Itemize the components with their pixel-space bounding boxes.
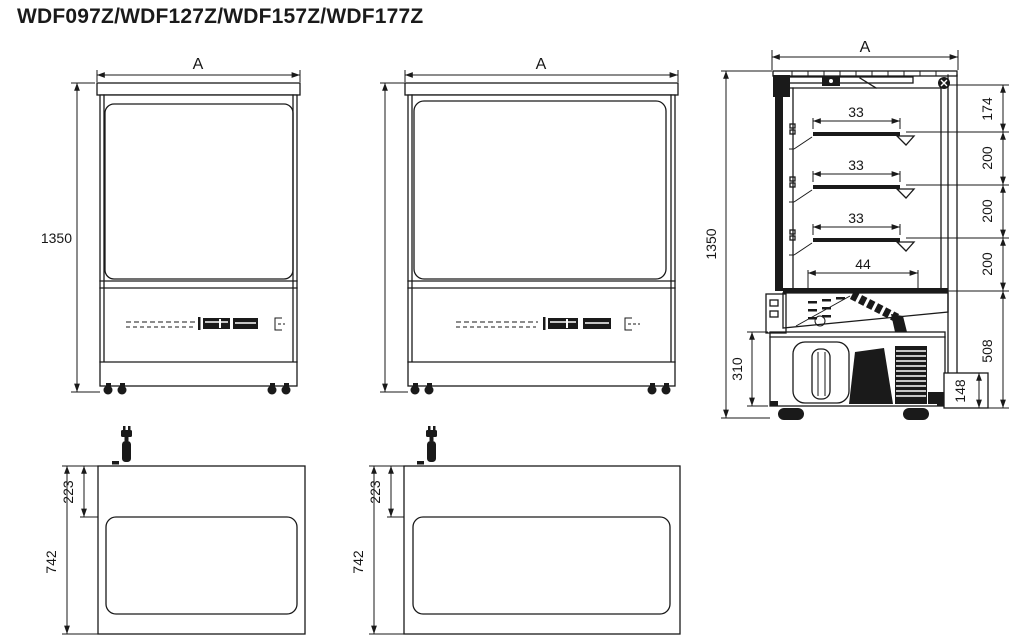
shelf-tag xyxy=(897,242,914,251)
dim-width-A: A xyxy=(536,56,547,73)
shelf xyxy=(813,185,900,189)
dim-depth: 742 xyxy=(350,550,366,574)
deck: 44 xyxy=(783,256,948,293)
cabinet-body xyxy=(408,95,675,386)
top-canopy xyxy=(97,83,300,95)
cabinet-outline xyxy=(97,83,300,386)
strip-divider xyxy=(198,317,201,330)
dim-bay-height: 310 xyxy=(729,357,745,381)
dim-front-offset: 223 xyxy=(60,480,76,504)
machine-compartment xyxy=(770,332,945,420)
evaporator-bay xyxy=(766,293,948,333)
front-glass-top xyxy=(773,75,790,97)
drain-hose-icon xyxy=(852,295,897,318)
dim-shelf-depth: 33 xyxy=(848,104,864,120)
front-view-wide: A xyxy=(380,56,678,395)
compressor-icon xyxy=(793,342,849,403)
rear-plinth: 148 xyxy=(944,373,988,408)
wheel-icon xyxy=(778,408,804,420)
caster-wheel-icon xyxy=(648,386,657,395)
top-canopy xyxy=(405,83,678,95)
shelf xyxy=(813,132,900,136)
dim-deck-depth: 44 xyxy=(855,256,871,272)
display-block-icon xyxy=(203,318,230,329)
strip-divider xyxy=(543,317,546,330)
compressor-bay-dimension: 310 xyxy=(729,332,768,406)
dim-shelf-depth: 33 xyxy=(848,157,864,173)
dim-overall-height: 1350 xyxy=(703,228,719,259)
fan-shroud-icon xyxy=(849,348,893,404)
cabinet-body xyxy=(100,95,297,386)
caster-wheel-icon xyxy=(662,386,671,395)
cabinet-section xyxy=(773,75,957,373)
dim-depth: 742 xyxy=(43,550,59,574)
dim-shelf-gap: 200 xyxy=(979,199,995,223)
shelf-3: 33 xyxy=(789,210,914,255)
shelf-tag xyxy=(897,136,914,145)
wheel-icon xyxy=(903,408,929,420)
drawing-sheet: WDF097Z/WDF127Z/WDF157Z/WDF177Z A 1350 xyxy=(0,0,1024,641)
dim-shelf-gap: 200 xyxy=(979,252,995,276)
caster-wheel-icon xyxy=(282,386,291,395)
dim-shelf-depth: 33 xyxy=(848,210,864,226)
front-view-narrow: A 1350 xyxy=(41,56,300,395)
dim-width-A: A xyxy=(193,56,204,73)
top-lid xyxy=(773,71,957,89)
height-dimension: 1350 xyxy=(41,83,100,392)
dim-shelf-gap: 200 xyxy=(979,146,995,170)
shelf xyxy=(813,238,900,242)
shelf-2: 33 xyxy=(789,157,914,202)
side-section-view: A 1350 xyxy=(703,39,1009,420)
dim-front-offset: 223 xyxy=(367,480,383,504)
caster-wheel-icon xyxy=(104,386,113,395)
cabinet-plan xyxy=(404,466,680,634)
power-cord-icon xyxy=(417,426,437,465)
width-dimension: A xyxy=(97,56,300,82)
width-dimension: A xyxy=(405,56,678,82)
dim-plinth-height: 148 xyxy=(952,379,968,403)
dim-width-A: A xyxy=(860,39,871,56)
display-block-icon xyxy=(548,318,578,329)
height-dimension-unlabeled xyxy=(380,83,408,392)
caster-wheel-icon xyxy=(425,386,434,395)
lid-frame xyxy=(783,77,913,83)
caster-wheel-icon xyxy=(118,386,127,395)
dim-overall-height: 1350 xyxy=(41,230,72,246)
caster-wheel-icon xyxy=(268,386,277,395)
front-glass xyxy=(775,95,783,291)
cabinet-plan xyxy=(98,466,305,634)
width-dimension: A xyxy=(772,39,958,70)
dim-base-height: 508 xyxy=(979,339,995,363)
deck-plate xyxy=(783,288,948,293)
top-view-narrow: 742 223 xyxy=(43,426,305,634)
dim-top-gap: 174 xyxy=(979,97,995,121)
cabinet-outline xyxy=(405,83,678,386)
caster-wheel-icon xyxy=(411,386,420,395)
shelf-1: 33 xyxy=(789,104,914,149)
power-cord-icon xyxy=(112,426,132,465)
technical-drawing: A 1350 xyxy=(0,0,1024,641)
top-view-wide: 742 223 xyxy=(350,426,680,634)
shelf-tag xyxy=(897,189,914,198)
